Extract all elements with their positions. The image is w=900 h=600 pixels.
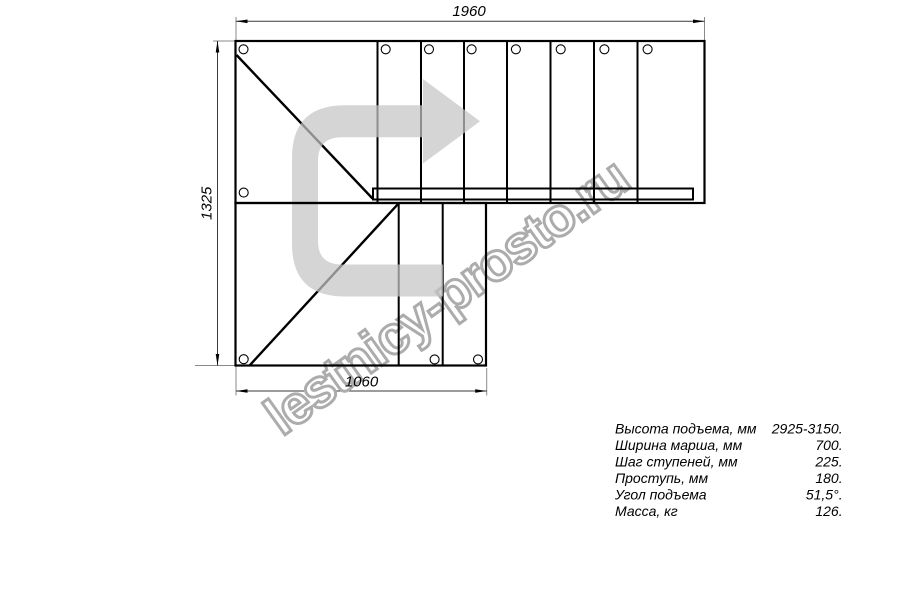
svg-text:1325: 1325 xyxy=(199,186,216,220)
svg-text:Масса, кг: Масса, кг xyxy=(615,503,678,519)
svg-text:2925-3150.: 2925-3150. xyxy=(771,420,843,436)
svg-text:51,5°.: 51,5°. xyxy=(806,486,843,502)
svg-text:Высота подъема, мм: Высота подъема, мм xyxy=(615,420,757,436)
svg-text:Ширина марша, мм: Ширина марша, мм xyxy=(615,437,743,453)
svg-text:Угол подъема: Угол подъема xyxy=(614,486,707,502)
svg-text:126.: 126. xyxy=(815,503,842,519)
svg-text:1960: 1960 xyxy=(452,3,486,20)
svg-text:Проступь, мм: Проступь, мм xyxy=(615,470,709,486)
svg-text:1060: 1060 xyxy=(345,374,379,391)
svg-text:700.: 700. xyxy=(815,437,842,453)
svg-text:225.: 225. xyxy=(814,453,842,469)
svg-text:180.: 180. xyxy=(815,470,842,486)
svg-text:Шаг ступеней, мм: Шаг ступеней, мм xyxy=(615,453,738,469)
